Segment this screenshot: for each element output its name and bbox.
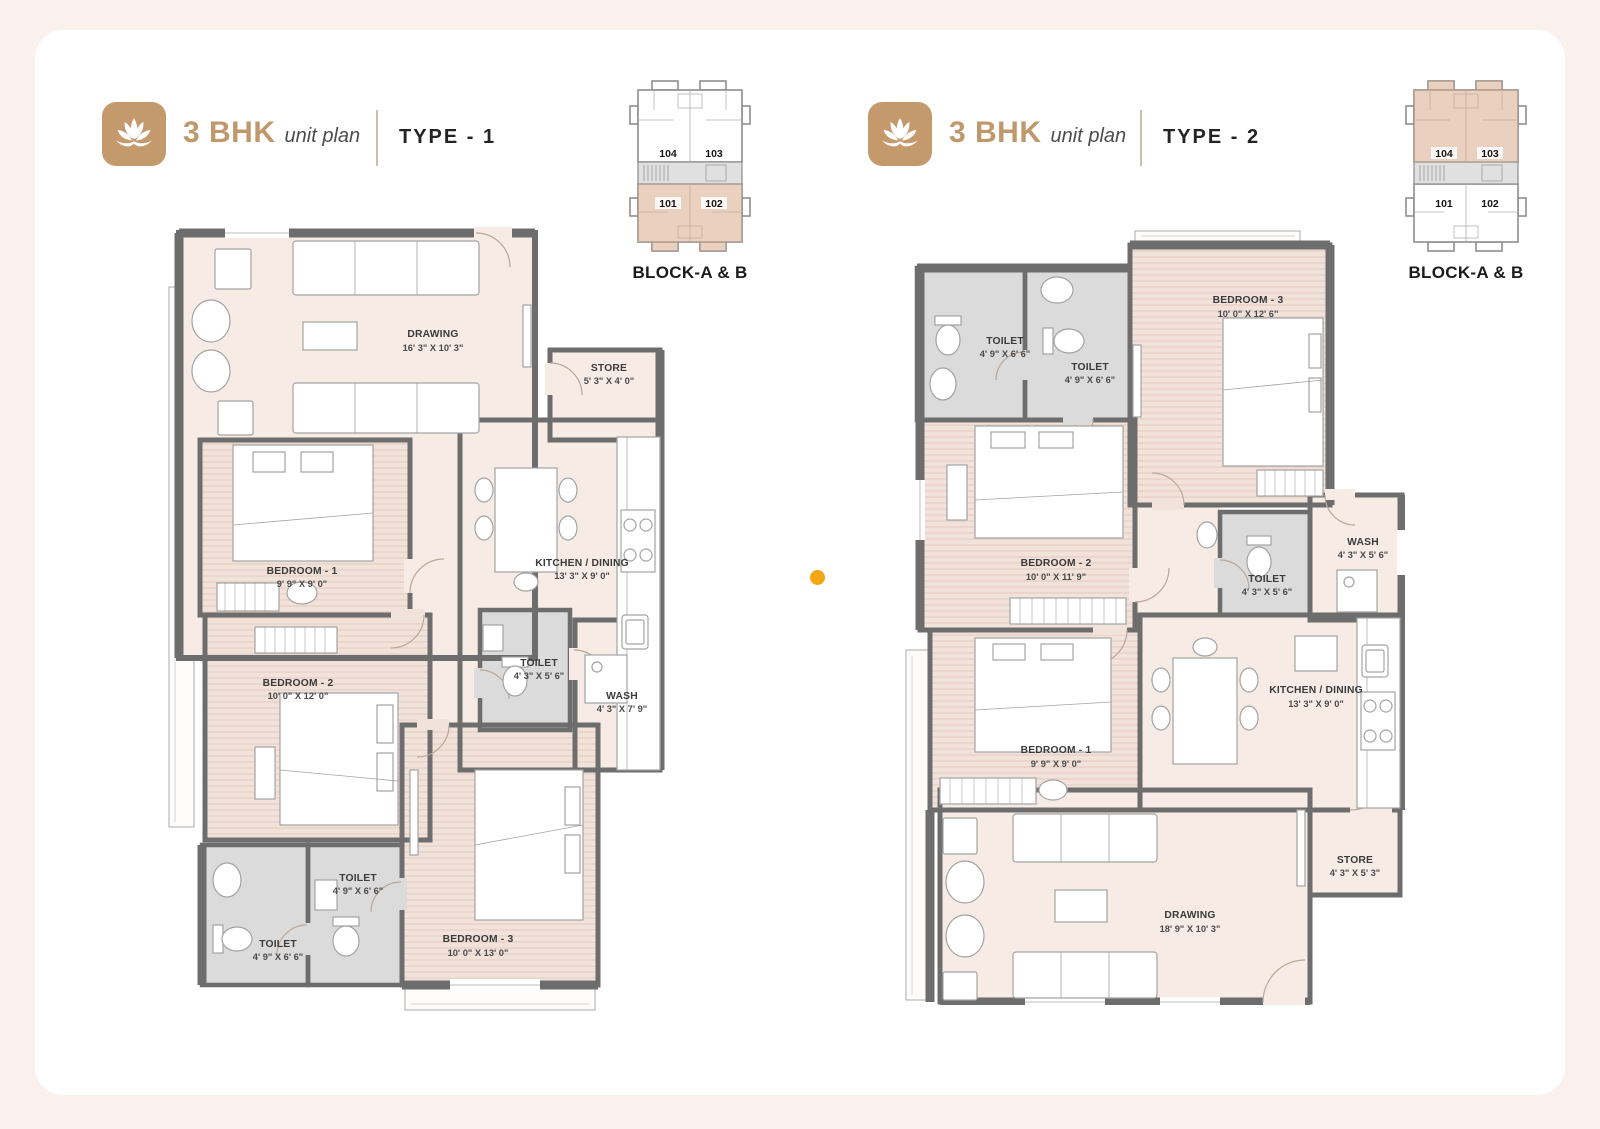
type1-label: TYPE - 1 bbox=[399, 126, 496, 149]
header-divider bbox=[376, 110, 378, 166]
unit-103-2: 103 bbox=[1481, 148, 1499, 160]
room-toilet-left bbox=[202, 845, 308, 985]
label-bedroom3: BEDROOM - 3 bbox=[443, 934, 514, 945]
type2-label: TYPE - 2 bbox=[1163, 126, 1260, 149]
label-toilet-center: TOILET bbox=[520, 658, 558, 669]
dims2-store: 4' 3" X 5' 3" bbox=[1330, 868, 1380, 878]
label-store: STORE bbox=[591, 363, 627, 374]
label-bedroom2: BEDROOM - 2 bbox=[263, 678, 334, 689]
dims-wash: 4' 3" X 7' 9" bbox=[597, 704, 647, 714]
dims2-toilet-left: 4' 9" X 6' 6" bbox=[980, 349, 1030, 359]
label2-toilet-left: TOILET bbox=[986, 336, 1024, 347]
dims-bedroom2: 10' 0" X 12' 0" bbox=[268, 691, 329, 701]
brand-text: 3 BHK bbox=[183, 116, 276, 150]
block-bold: A & B bbox=[700, 263, 747, 282]
unit-104: 104 bbox=[659, 148, 677, 160]
unit-101-2: 101 bbox=[1435, 198, 1453, 210]
brand-subtext-2: unit plan bbox=[1051, 125, 1127, 148]
lotus-logo bbox=[102, 102, 166, 166]
lotus-icon bbox=[111, 111, 157, 157]
brand-subtext: unit plan bbox=[285, 125, 361, 148]
block-bold-2: A & B bbox=[1476, 263, 1523, 282]
dims-drawing: 16' 3" X 10' 3" bbox=[403, 343, 464, 353]
label2-bedroom1: BEDROOM - 1 bbox=[1021, 745, 1092, 756]
floorplan-type2: TOILET 4' 9" X 6' 6" TOILET 4' 9" X 6' 6… bbox=[905, 230, 1405, 1005]
label2-bedroom2: BEDROOM - 2 bbox=[1021, 558, 1092, 569]
brand-title-2: 3 BHK unit plan bbox=[949, 116, 1126, 150]
keyplan2-lobby bbox=[1414, 162, 1518, 184]
label2-toilet-mid: TOILET bbox=[1071, 362, 1109, 373]
label2-kitchen: KITCHEN / DINING bbox=[1269, 685, 1363, 696]
block-label-type2: BLOCK-A & B bbox=[1386, 263, 1546, 283]
label-wash: WASH bbox=[606, 691, 638, 702]
brand-title: 3 BHK unit plan bbox=[183, 116, 360, 150]
keyplan-lobby bbox=[638, 162, 742, 184]
brand-text-2: 3 BHK bbox=[949, 116, 1042, 150]
dims2-bedroom2: 10' 0" X 11' 9" bbox=[1026, 572, 1086, 582]
dims-store: 5' 3" X 4' 0" bbox=[584, 376, 634, 386]
watermark-letter: A bbox=[630, 360, 940, 660]
block-prefix-2: BLOCK- bbox=[1408, 263, 1476, 282]
label2-drawing: DRAWING bbox=[1164, 910, 1215, 921]
room-toilet-mid bbox=[308, 845, 402, 985]
dims2-bedroom3: 10' 0" X 12' 6" bbox=[1218, 309, 1279, 319]
dims2-toilet-right: 4' 3" X 5' 6" bbox=[1242, 587, 1292, 597]
dims-toilet-mid: 4' 9" X 6' 6" bbox=[333, 886, 383, 896]
dims2-bedroom1: 9' 9" X 9' 0" bbox=[1031, 759, 1081, 769]
unit-103: 103 bbox=[705, 148, 723, 160]
dims2-toilet-mid: 4' 9" X 6' 6" bbox=[1065, 375, 1115, 385]
dims2-kitchen: 13' 3" X 9' 0" bbox=[1288, 699, 1344, 709]
lotus-logo-2 bbox=[868, 102, 932, 166]
keyplan-type2: 104 103 101 102 bbox=[1400, 80, 1532, 252]
unit-104-2: 104 bbox=[1435, 148, 1453, 160]
dims2-wash: 4' 3" X 5' 6" bbox=[1338, 550, 1388, 560]
dims-kitchen: 13' 3" X 9' 0" bbox=[554, 571, 610, 581]
unit-101: 101 bbox=[659, 198, 677, 210]
dims-toilet-left: 4' 9" X 6' 6" bbox=[253, 952, 303, 962]
header-divider-2 bbox=[1140, 110, 1142, 166]
label2-wash: WASH bbox=[1347, 537, 1379, 548]
label2-store: STORE bbox=[1337, 855, 1373, 866]
dims-toilet-center: 4' 3" X 5' 6" bbox=[514, 671, 564, 681]
label-bedroom1: BEDROOM - 1 bbox=[267, 566, 338, 577]
watermark-dot bbox=[810, 570, 825, 585]
label-drawing: DRAWING bbox=[407, 329, 458, 340]
floorplan-type1: DRAWING 16' 3" X 10' 3" STORE 5' 3" X 4'… bbox=[165, 225, 665, 1015]
dims-bedroom3: 10' 0" X 13' 0" bbox=[448, 948, 509, 958]
unit-102: 102 bbox=[705, 198, 723, 210]
label2-toilet-right: TOILET bbox=[1248, 574, 1286, 585]
label-kitchen: KITCHEN / DINING bbox=[535, 558, 629, 569]
label-toilet-left: TOILET bbox=[259, 939, 297, 950]
label-toilet-mid: TOILET bbox=[339, 873, 377, 884]
lotus-icon-2 bbox=[877, 111, 923, 157]
dims-bedroom1: 9' 9" X 9' 0" bbox=[277, 579, 327, 589]
label2-bedroom3: BEDROOM - 3 bbox=[1213, 295, 1284, 306]
room2-store bbox=[1310, 810, 1400, 895]
brochure-card: 3 BHK unit plan TYPE - 1 bbox=[35, 30, 1565, 1095]
unit-102-2: 102 bbox=[1481, 198, 1499, 210]
dims2-drawing: 18' 9" X 10' 3" bbox=[1160, 924, 1221, 934]
